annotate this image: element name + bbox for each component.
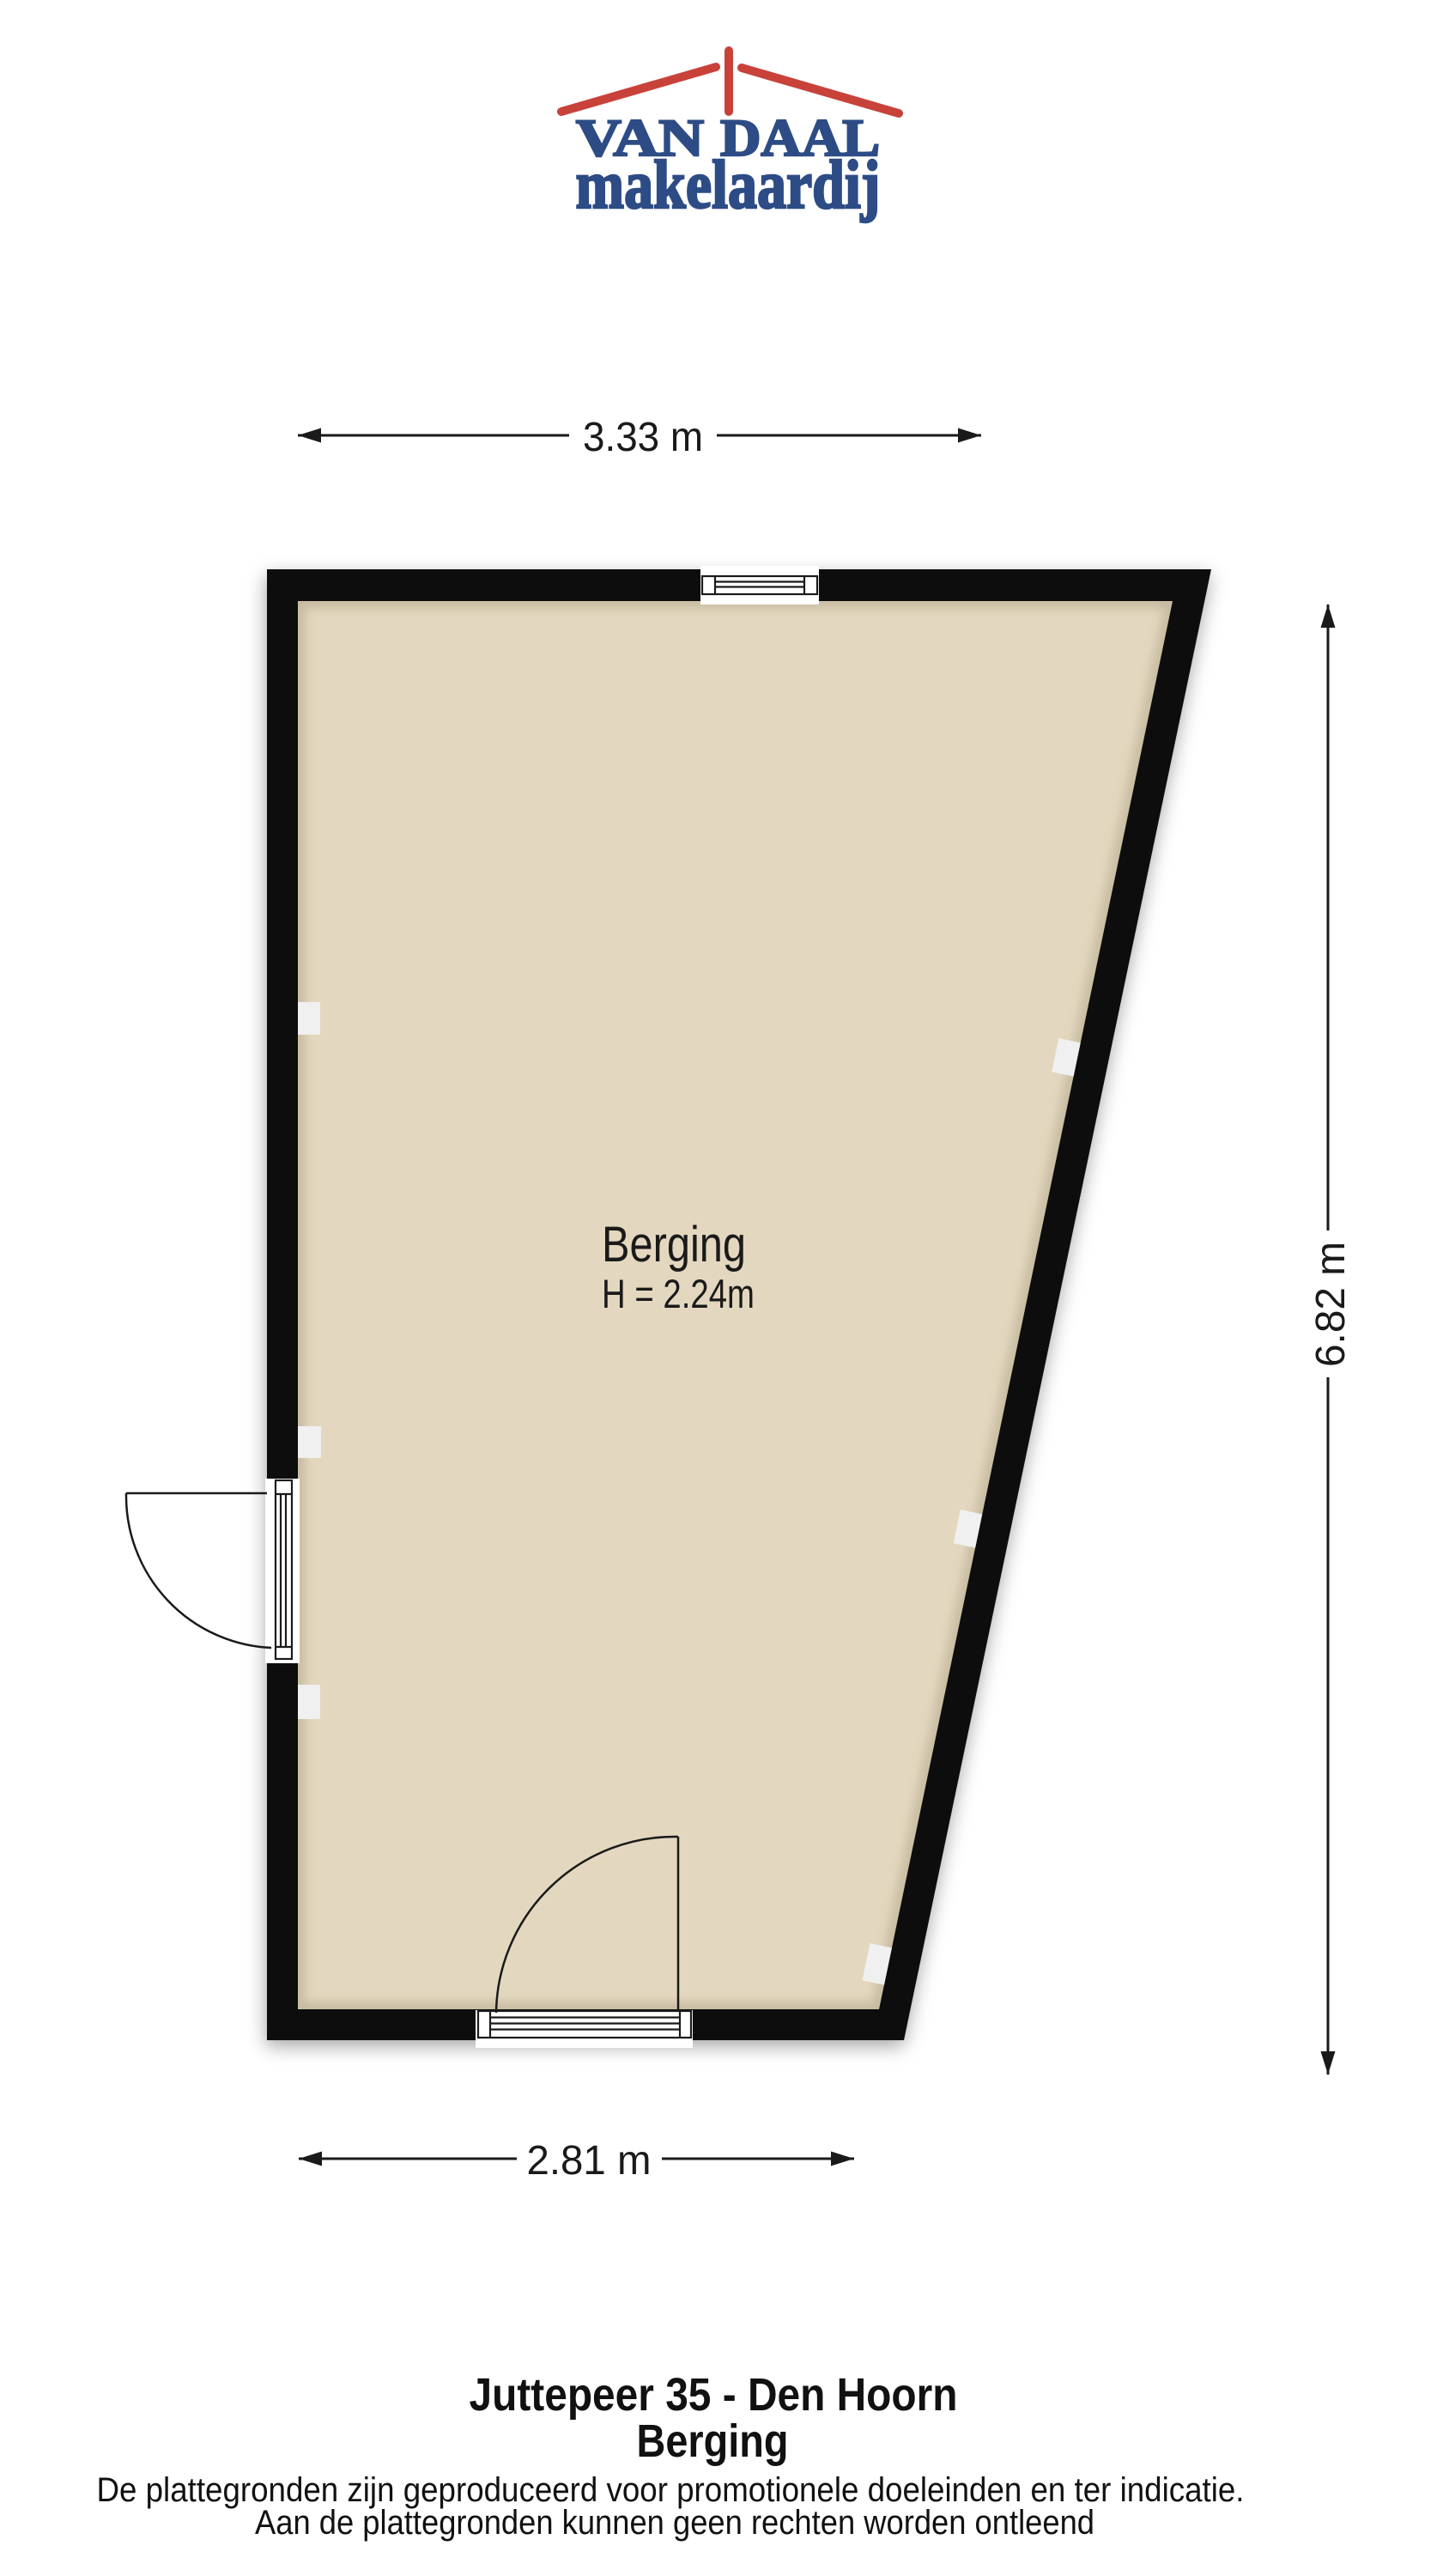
- svg-text:6.82 m: 6.82 m: [1308, 1242, 1354, 1367]
- svg-text:Berging: Berging: [637, 2415, 789, 2467]
- svg-text:makelaardij: makelaardij: [576, 148, 881, 223]
- svg-text:Juttepeer 35 - Den Hoorn: Juttepeer 35 - Den Hoorn: [470, 2369, 958, 2421]
- svg-text:H = 2.24m: H = 2.24m: [602, 1271, 755, 1316]
- svg-text:Aan de plattegronden kunnen ge: Aan de plattegronden kunnen geen rechten…: [255, 2504, 1094, 2542]
- svg-text:Berging: Berging: [602, 1217, 746, 1273]
- svg-text:2.81 m: 2.81 m: [527, 2138, 652, 2184]
- svg-text:3.33 m: 3.33 m: [583, 415, 703, 460]
